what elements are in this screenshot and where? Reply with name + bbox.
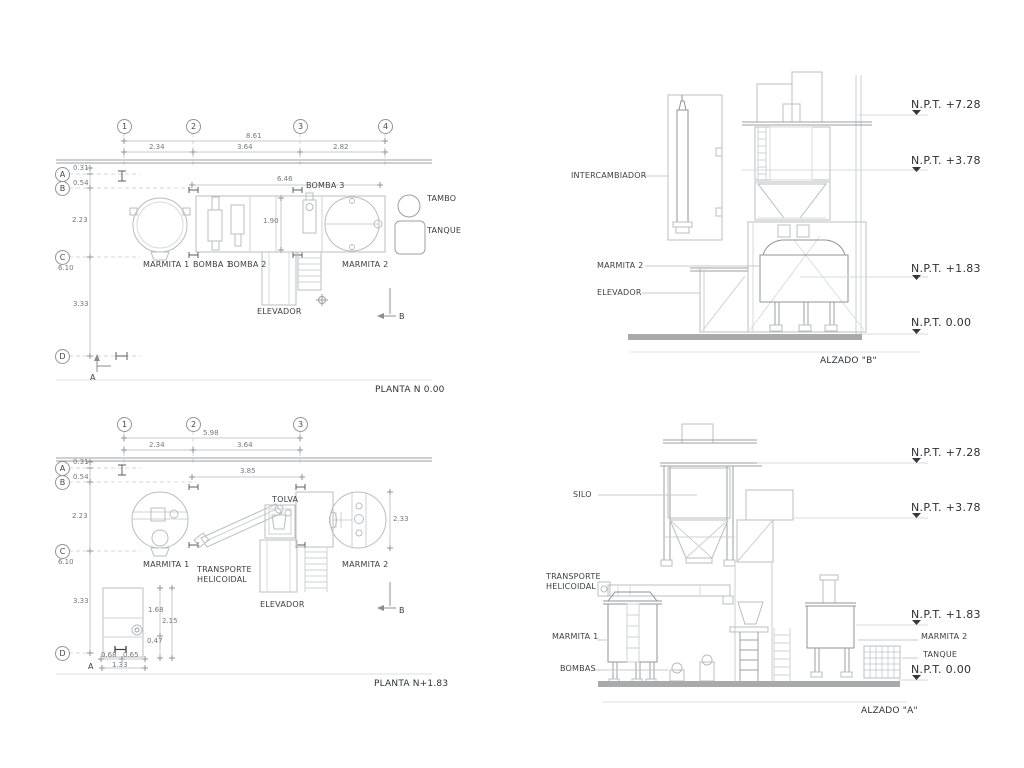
dim-label: 5.98 [203, 429, 219, 437]
dim-label: 2.23 [72, 512, 88, 520]
grid-bubble-row: B [55, 475, 70, 490]
grid-bubble-col: 2 [186, 417, 201, 432]
drawing-title-elev-b: ALZADO "B" [820, 356, 877, 366]
dim-label: 6.10 [58, 558, 74, 566]
section-mark-a: A [88, 662, 94, 671]
dim-label: 2.23 [72, 216, 88, 224]
equipment-label-bomba2: BOMBA 2 [228, 260, 267, 269]
grid-bubble-col: 3 [293, 417, 308, 432]
equipment-label-elevador: ELEVADOR [597, 288, 642, 297]
dim-label: 1.68 [148, 606, 164, 614]
equipment-label-marmita1: MARMITA 1 [143, 560, 189, 569]
elevation-a-linework [595, 424, 928, 702]
dim-label: 1.90 [263, 217, 279, 225]
grid-bubble-row: C [55, 544, 70, 559]
equipment-label-tolva: TOLVA [272, 495, 298, 504]
level-label-npt: N.P.T. +3.78 [911, 154, 981, 167]
dim-label: 3.64 [237, 143, 253, 151]
equipment-label-marmita2: MARMITA 2 [921, 632, 967, 641]
grid-bubble-row: A [55, 167, 70, 182]
equipment-label-bomba3: BOMBA 3 [306, 181, 345, 190]
grid-bubble-row: D [55, 646, 70, 661]
equipment-label-elevador: ELEVADOR [260, 600, 305, 609]
level-label-npt: N.P.T. +3.78 [911, 501, 981, 514]
dim-label: 0.31 [73, 458, 89, 466]
grid-bubble-col: 1 [117, 417, 132, 432]
dim-label: 2.82 [333, 143, 349, 151]
dim-label: 2.33 [393, 515, 409, 523]
section-mark-b: B [399, 312, 405, 321]
equipment-label-transporte: TRANSPORTE HELICOIDAL [197, 565, 263, 586]
equipment-label-intercambiador: INTERCAMBIADOR [571, 171, 647, 180]
dim-label: 0.54 [73, 473, 89, 481]
equipment-label-marmita2: MARMITA 2 [597, 261, 643, 270]
grid-bubble-row: D [55, 349, 70, 364]
equipment-label-tambo: TAMBO [427, 194, 456, 203]
dim-label: 2.34 [149, 143, 165, 151]
dim-label: 3.33 [73, 597, 89, 605]
plan-top-linework [56, 133, 432, 380]
equipment-label-marmita1: MARMITA 1 [143, 260, 189, 269]
drawing-title-plan-top: PLANTA N 0.00 [375, 385, 445, 395]
grid-bubble-col: 2 [186, 119, 201, 134]
drawing-title-plan-bottom: PLANTA N+1.83 [374, 679, 448, 689]
dim-label: 0.54 [73, 179, 89, 187]
equipment-label-elevador: ELEVADOR [257, 307, 302, 316]
dim-label: 2.34 [149, 441, 165, 449]
equipment-label-tanque: TANQUE [427, 226, 461, 235]
section-mark-b: B [399, 606, 405, 615]
equipment-label-bombas: BOMBAS [560, 664, 596, 673]
equipment-label-silo: SILO [573, 490, 592, 499]
dim-label: 0.68 [101, 651, 117, 659]
level-label-npt: N.P.T. +7.28 [911, 98, 981, 111]
level-label-npt: N.P.T. 0.00 [911, 663, 971, 676]
dim-label: 0.65 [123, 651, 139, 659]
drawing-title-elev-a: ALZADO "A" [861, 706, 918, 716]
equipment-label-tanque: TANQUE [923, 650, 957, 659]
dim-label: 6.10 [58, 264, 74, 272]
dim-label: 0.47 [147, 637, 163, 645]
grid-bubble-col: 4 [378, 119, 393, 134]
grid-bubble-col: 3 [293, 119, 308, 134]
level-label-npt: N.P.T. 0.00 [911, 316, 971, 329]
equipment-label-marmita2: MARMITA 2 [342, 260, 388, 269]
grid-bubble-row: A [55, 461, 70, 476]
level-label-npt: N.P.T. +1.83 [911, 262, 981, 275]
dim-label: 3.64 [237, 441, 253, 449]
grid-bubble-col: 1 [117, 119, 132, 134]
dim-label: 6.46 [277, 175, 293, 183]
elevation-b-linework [628, 72, 928, 352]
dim-label: 3.33 [73, 300, 89, 308]
level-label-npt: N.P.T. +7.28 [911, 446, 981, 459]
dim-label: 3.85 [240, 467, 256, 475]
level-label-npt: N.P.T. +1.83 [911, 608, 981, 621]
drawing-canvas: 1 2 3 4 A B C D 8.61 2.34 3.64 2.82 6.46… [0, 0, 1024, 768]
equipment-label-marmita2: MARMITA 2 [342, 560, 388, 569]
dim-label: 0.31 [73, 164, 89, 172]
dim-label: 1.33 [112, 661, 128, 669]
equipment-label-transporte: TRANSPORTE HELICOIDAL [546, 572, 612, 593]
section-mark-a: A [90, 373, 96, 382]
grid-bubble-row: B [55, 181, 70, 196]
equipment-label-marmita1: MARMITA 1 [552, 632, 598, 641]
dim-label: 8.61 [246, 132, 262, 140]
equipment-label-bomba1: BOMBA 1 [193, 260, 232, 269]
dim-label: 2.15 [162, 617, 178, 625]
grid-bubble-row: C [55, 250, 70, 265]
